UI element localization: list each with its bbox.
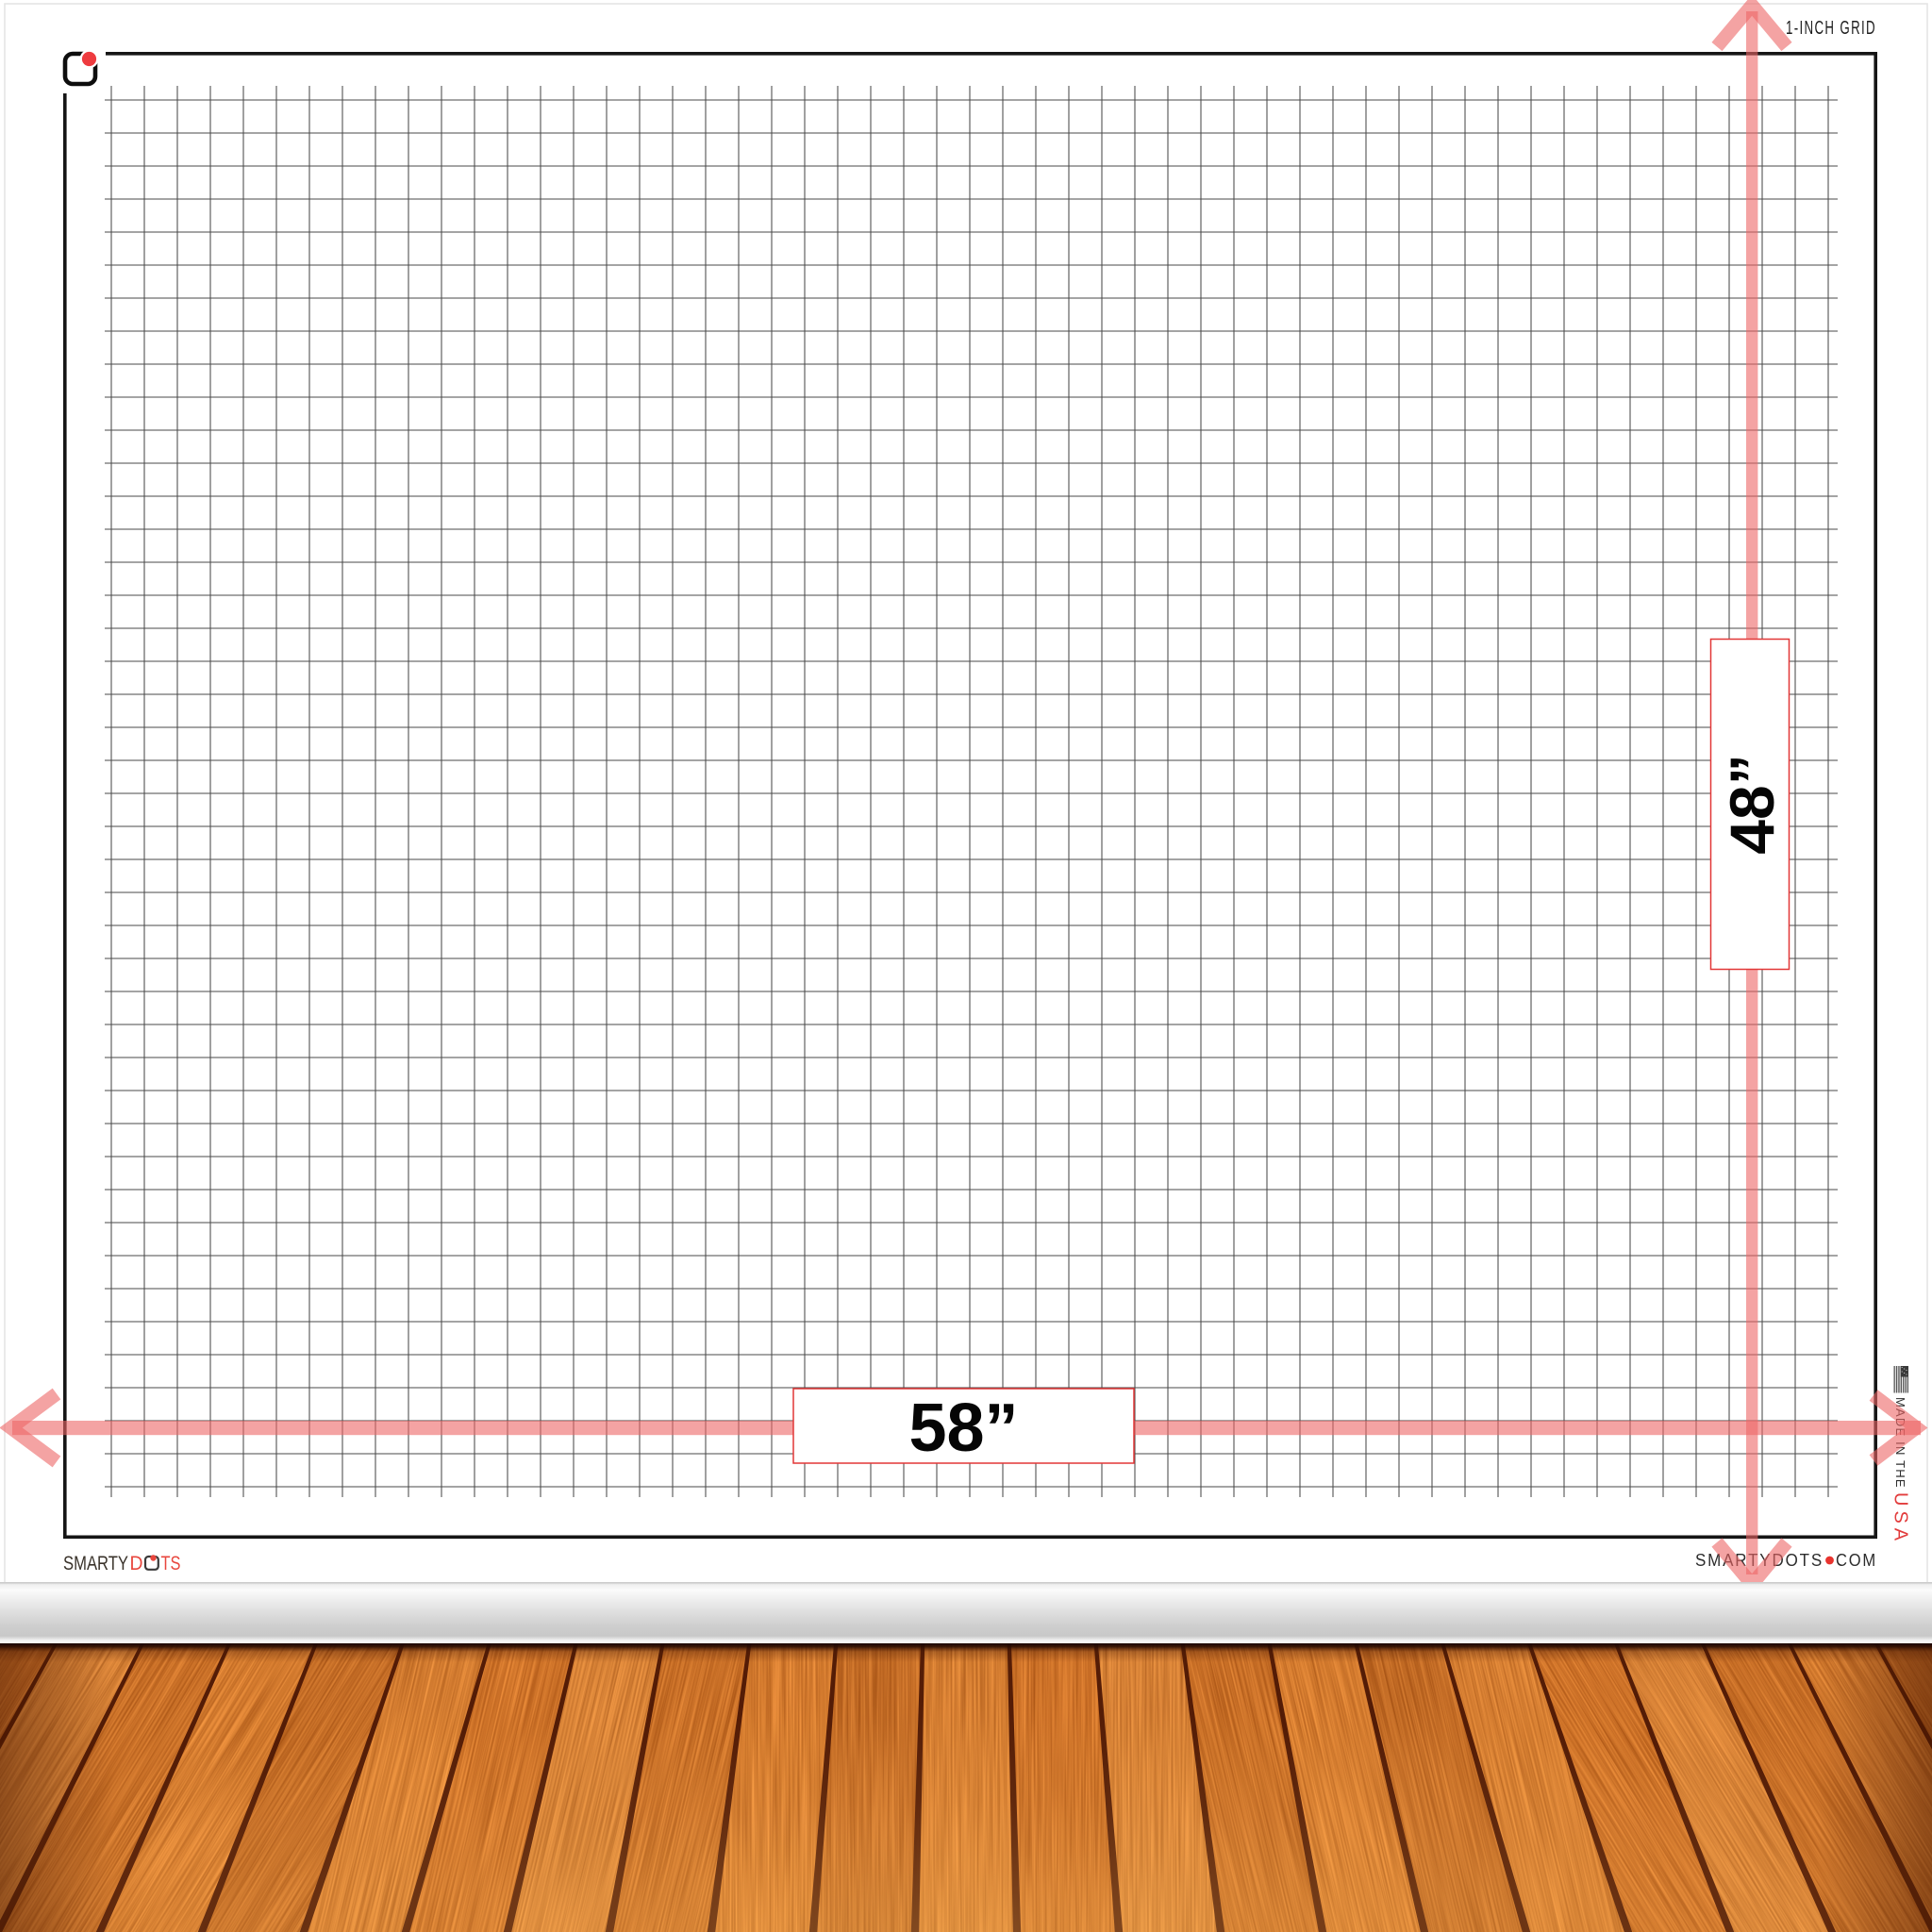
svg-text:TS: TS (161, 1553, 181, 1574)
svg-text:1-INCH GRID: 1-INCH GRID (1786, 18, 1876, 39)
svg-text:D: D (130, 1553, 143, 1574)
svg-text:USA: USA (1890, 1492, 1911, 1545)
svg-text:58”: 58” (908, 1391, 1018, 1466)
svg-text:COM: COM (1836, 1550, 1877, 1570)
svg-text:48”: 48” (1717, 754, 1787, 854)
svg-text:SMARTY: SMARTY (63, 1553, 128, 1574)
